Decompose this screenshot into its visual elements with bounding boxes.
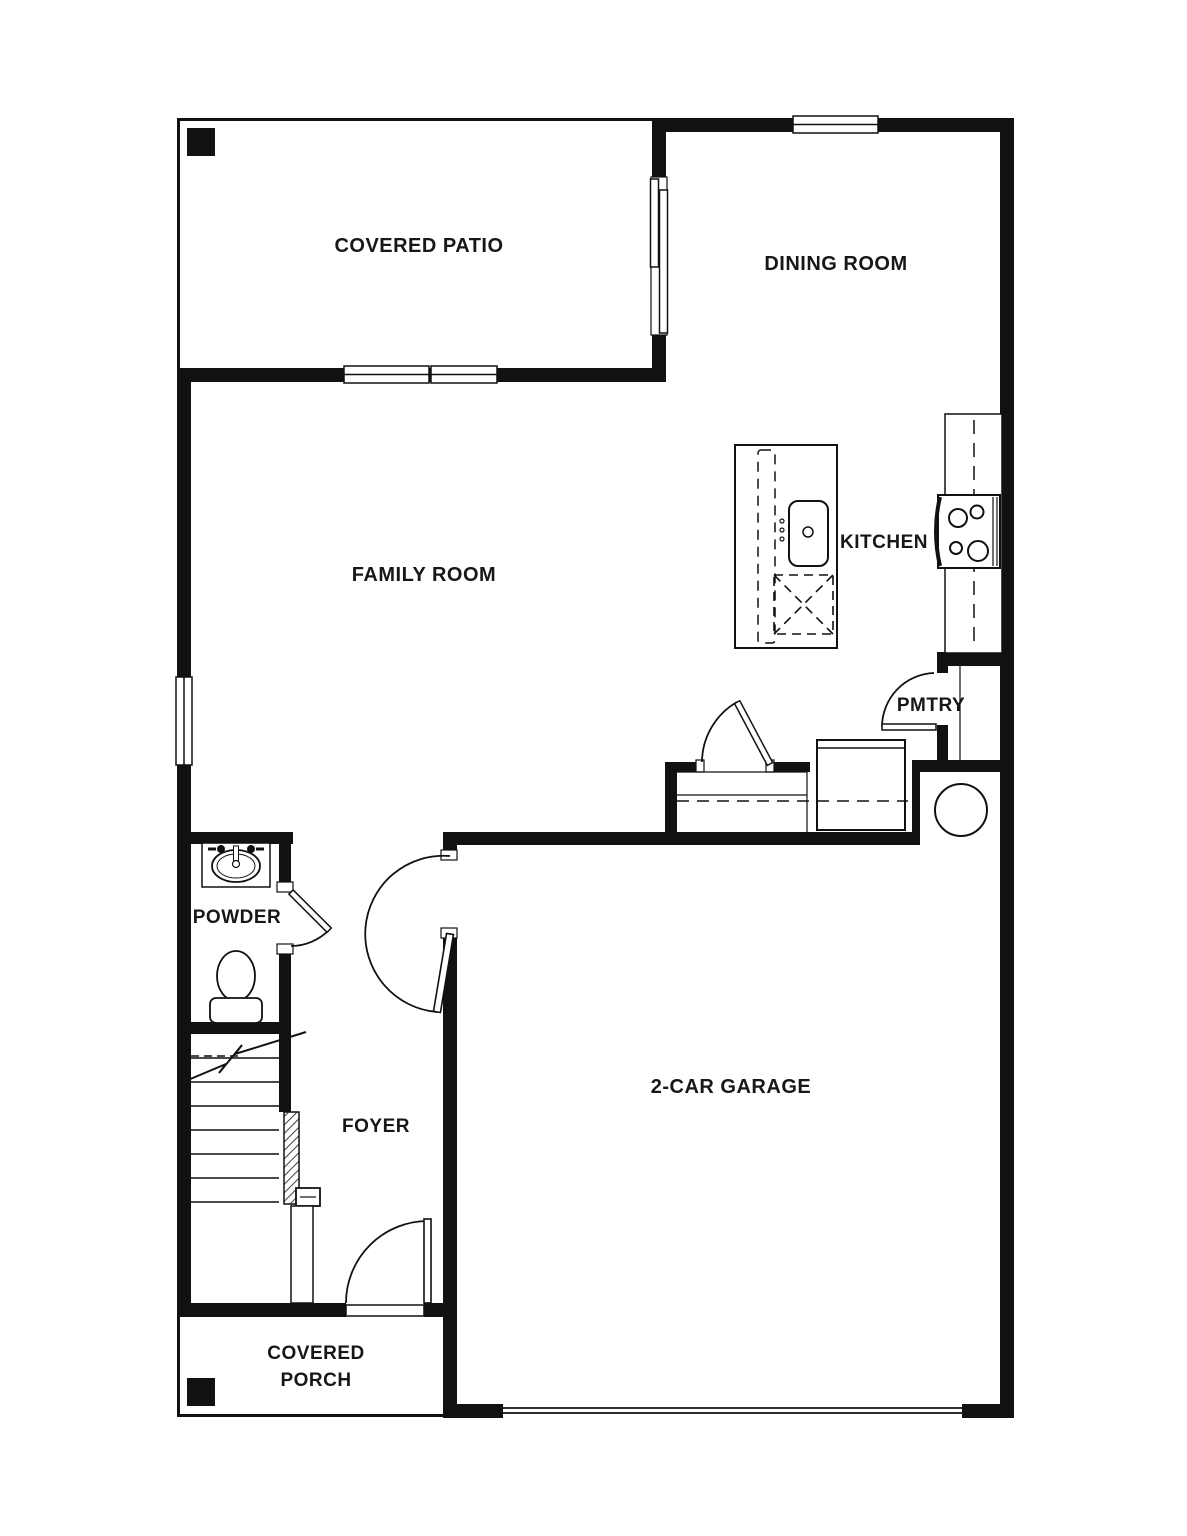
label-porch-line1: COVERED — [267, 1343, 364, 1364]
utility-box — [817, 740, 905, 830]
powder-door-swing-arc — [291, 930, 329, 946]
porch-post — [187, 1378, 215, 1406]
front-door-threshold — [346, 1305, 424, 1316]
front-door — [346, 1219, 431, 1316]
stair-treads — [191, 1058, 279, 1202]
wall-closet-west — [665, 762, 677, 836]
toilet-bowl — [217, 951, 255, 1001]
wall-pantry-jamb-top — [937, 652, 948, 673]
label-dining-room: DINING ROOM — [764, 253, 907, 275]
label-garage: 2-CAR GARAGE — [651, 1076, 811, 1098]
wall-stairs-east — [279, 1034, 291, 1112]
patio-left-edge — [177, 118, 180, 370]
label-pantry: PMTRY — [897, 695, 965, 716]
powder-door-jamb-bottom — [277, 944, 293, 954]
front-door-leaf — [424, 1219, 431, 1303]
water-heater — [935, 784, 987, 836]
wall-garage-front-left-stub — [443, 1404, 503, 1418]
window-dining — [793, 116, 878, 133]
wall-garage-front-right-stub — [962, 1404, 1014, 1418]
sink-hole-2 — [780, 528, 784, 532]
powder-door-jamb-top — [277, 882, 293, 892]
porch-left-edge — [177, 1317, 180, 1417]
closet-door — [696, 701, 774, 772]
wall-powder-north — [177, 832, 293, 844]
faucet-handle-left — [217, 845, 225, 853]
burner-large-bottom — [968, 541, 988, 561]
faucet-handle-right — [247, 845, 255, 853]
powder-fixtures — [202, 843, 270, 1023]
burner-large-top — [949, 509, 967, 527]
label-powder: POWDER — [193, 907, 282, 928]
island-sink-drain — [803, 527, 813, 537]
wall-patio-divider-lower — [652, 332, 666, 382]
toilet-tank — [210, 998, 262, 1023]
wall-powder-east-lower — [279, 946, 291, 1022]
garage-entry-door — [365, 850, 457, 1012]
burner-small-top — [971, 506, 984, 519]
garage-door — [503, 1408, 962, 1413]
powder-sink-drain — [233, 861, 240, 868]
windows — [176, 116, 878, 765]
window-family-west — [176, 677, 192, 765]
sink-hole-3 — [780, 537, 784, 541]
label-foyer: FOYER — [342, 1116, 410, 1137]
wall-garage-north — [447, 832, 917, 845]
wall-pantry-jamb-bottom — [937, 725, 948, 766]
window-family-rear-right — [431, 366, 497, 383]
patio-post — [187, 128, 215, 156]
floor-plan-drawing: COVERED PATIO DINING ROOM FAMILY ROOM KI… — [0, 0, 1187, 1536]
closet-door-leaf — [734, 701, 772, 766]
sink-hole-1 — [780, 519, 784, 523]
window-family-rear-left — [344, 366, 429, 383]
sliding-door-panel-right — [660, 190, 668, 333]
pantry-door-leaf — [882, 724, 936, 730]
label-kitchen: KITCHEN — [840, 532, 928, 553]
wall-pantry-south — [912, 760, 1014, 772]
label-family-room: FAMILY ROOM — [352, 564, 496, 586]
interior-walls — [177, 652, 1014, 1112]
wall-front-left — [177, 1303, 346, 1317]
front-door-swing-arc — [346, 1221, 428, 1303]
sliding-door-panel-left — [651, 179, 659, 267]
under-stair-partition — [291, 1206, 313, 1303]
label-porch-line2: PORCH — [280, 1370, 351, 1391]
closet-door-swing-arc — [702, 702, 737, 762]
wall-powder-east-upper — [279, 832, 291, 890]
powder-door — [277, 882, 331, 954]
patio-top-edge — [177, 118, 666, 121]
wall-patio-divider-upper — [652, 118, 666, 178]
burner-small-bottom — [950, 542, 962, 554]
porch-outline — [177, 1317, 457, 1417]
sliding-glass-door — [651, 177, 668, 335]
wall-garage-west-main — [443, 938, 457, 1418]
floor-plan-page: COVERED PATIO DINING ROOM FAMILY ROOM KI… — [0, 0, 1187, 1536]
wall-closet-north-right — [770, 762, 810, 772]
wall-kitchen-south — [937, 652, 1014, 666]
staircase — [188, 1032, 320, 1303]
powder-door-leaf — [289, 890, 331, 932]
powder-faucet-stem — [234, 846, 239, 862]
porch-bottom-edge — [177, 1414, 457, 1417]
label-covered-patio: COVERED PATIO — [334, 235, 503, 257]
wall-heater-nook-west — [912, 772, 920, 845]
